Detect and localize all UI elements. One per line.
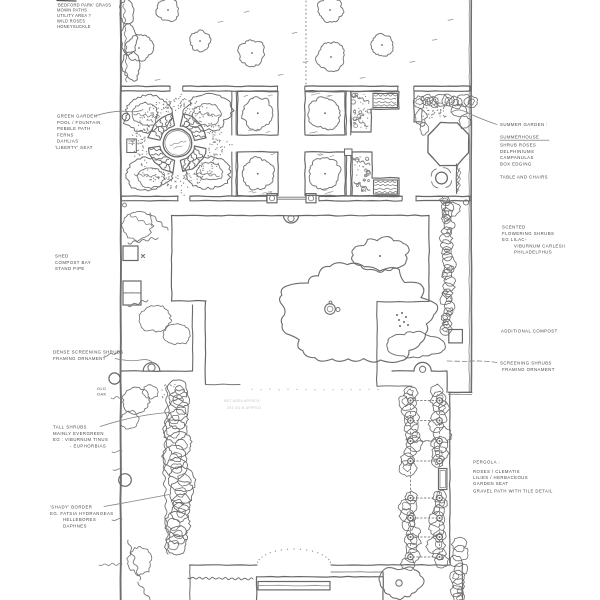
svg-text:ADDITIONAL COMPOST: ADDITIONAL COMPOST — [501, 329, 558, 334]
svg-text:WILD ROSES: WILD ROSES — [57, 19, 85, 24]
svg-text:SCREENING SHRUBS: SCREENING SHRUBS — [500, 361, 552, 366]
svg-text:FERNS: FERNS — [57, 132, 74, 137]
svg-text:SHRUB ROSES: SHRUB ROSES — [500, 143, 536, 148]
svg-text:'BEDFORD PARK' GRASS: 'BEDFORD PARK' GRASS — [57, 2, 111, 7]
svg-text:TABLE AND CHAIRS: TABLE AND CHAIRS — [500, 175, 548, 180]
svg-text:PHILADELPHUS: PHILADELPHUS — [514, 250, 552, 255]
svg-text:SCENTED: SCENTED — [502, 225, 526, 230]
svg-text:DAPHNES: DAPHNES — [63, 523, 87, 528]
svg-text:STAND PIPE: STAND PIPE — [55, 266, 85, 271]
svg-text:EG. FATSIA HYDRANGEAS: EG. FATSIA HYDRANGEAS — [50, 511, 114, 516]
svg-text:NET AREA APPROX: NET AREA APPROX — [224, 399, 260, 403]
svg-text:ROSES / CLEMATIS: ROSES / CLEMATIS — [473, 469, 520, 474]
svg-text:- EUPHORBIAS: - EUPHORBIAS — [70, 443, 106, 448]
svg-text:EG : VIBURNUM TINUS: EG : VIBURNUM TINUS — [53, 437, 108, 442]
svg-text:HONEYSUCKLE: HONEYSUCKLE — [57, 24, 91, 29]
svg-text:'SHADY' BORDER: 'SHADY' BORDER — [50, 505, 92, 510]
svg-text:GREEN GARDEN :: GREEN GARDEN : — [57, 114, 101, 119]
svg-text:DAHLIAS: DAHLIAS — [57, 139, 79, 144]
svg-text:OAK: OAK — [97, 392, 107, 397]
svg-text:EG LILAC-: EG LILAC- — [502, 237, 527, 242]
svg-text:SHED: SHED — [55, 254, 69, 259]
svg-text:UTILITY AREA ?: UTILITY AREA ? — [57, 13, 92, 18]
svg-text:DENSE SCREENING SHRUBS: DENSE SCREENING SHRUBS — [53, 350, 124, 355]
svg-text:MAINLY EVERGREEN: MAINLY EVERGREEN — [53, 431, 104, 436]
svg-text:MOWN PATHS: MOWN PATHS — [57, 8, 87, 13]
svg-text:COMPOST BAY: COMPOST BAY — [55, 260, 91, 265]
svg-text:PEBBLE PATH: PEBBLE PATH — [57, 126, 91, 131]
svg-text:CAMPANULAS: CAMPANULAS — [500, 155, 534, 160]
svg-text:POOL / FOUNTAIN: POOL / FOUNTAIN — [57, 120, 101, 125]
svg-text:SUMMER GARDEN :: SUMMER GARDEN : — [500, 122, 548, 127]
svg-text:LILIES / HERBACEOUS: LILIES / HERBACEOUS — [473, 475, 528, 480]
svg-text:FRAMING ORNAMENT: FRAMING ORNAMENT — [53, 356, 106, 361]
svg-text:BOX EDGING: BOX EDGING — [500, 161, 532, 166]
svg-text:GARDEN SEAT: GARDEN SEAT — [473, 481, 508, 486]
svg-text:OLD: OLD — [97, 386, 106, 391]
svg-text:GRAVEL PATH WITH TILE DETAIL: GRAVEL PATH WITH TILE DETAIL — [473, 488, 553, 493]
svg-text:FLOWERING SHRUBS: FLOWERING SHRUBS — [502, 231, 554, 236]
svg-text:SUMMERHOUSE: SUMMERHOUSE — [500, 135, 539, 140]
svg-text:204 SQ M APPROX: 204 SQ M APPROX — [227, 406, 262, 410]
svg-text:DELPHINIUMS: DELPHINIUMS — [500, 149, 534, 154]
svg-text:PERGOLA :: PERGOLA : — [473, 460, 500, 465]
svg-text:TALL SHRUBS: TALL SHRUBS — [53, 425, 87, 430]
svg-text:VIBURNUM CARLESII: VIBURNUM CARLESII — [514, 243, 565, 248]
svg-text:FRAMING ORNAMENT: FRAMING ORNAMENT — [502, 367, 555, 372]
svg-text:'LIBERTY' SEAT: 'LIBERTY' SEAT — [55, 145, 93, 150]
svg-text:HELLEBORES: HELLEBORES — [63, 517, 96, 522]
